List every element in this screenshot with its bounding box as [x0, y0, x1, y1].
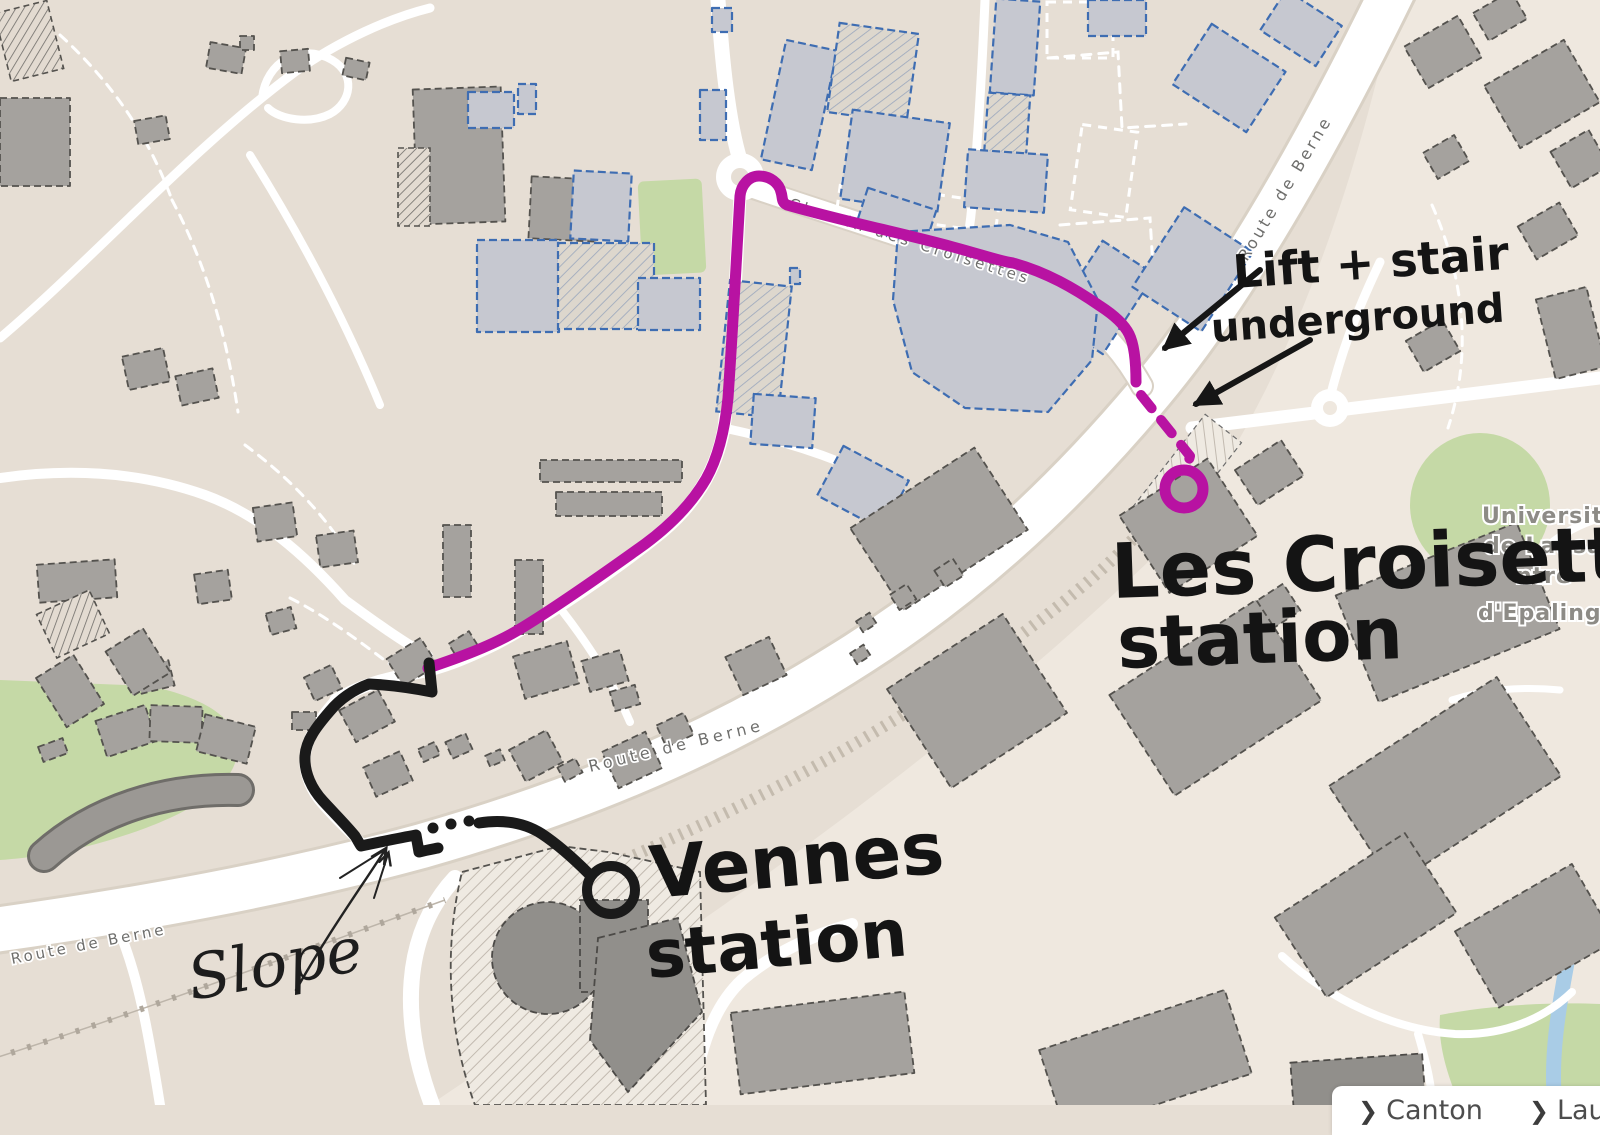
breadcrumb-label: Lausanne [1557, 1095, 1600, 1126]
map-canvas: Chemin des Croisettes Route de Berne Rou… [0, 0, 1600, 1105]
breadcrumb-item-canton[interactable]: ❯ Canton [1358, 1095, 1483, 1126]
university-label-line4: d'Epaling [1478, 601, 1600, 626]
walking-route-dot [464, 816, 475, 827]
annotation-croisettes-station-line2: station [1116, 591, 1404, 685]
breadcrumb-item-lausanne[interactable]: ❯ Lausanne [1529, 1095, 1600, 1126]
chevron-right-icon: ❯ [1358, 1097, 1378, 1125]
walking-route-dot [428, 823, 439, 834]
breadcrumb: ❯ Canton ❯ Lausanne [1332, 1086, 1600, 1135]
breadcrumb-label: Canton [1386, 1095, 1483, 1126]
chevron-right-icon: ❯ [1529, 1097, 1549, 1125]
walking-route-dot [446, 819, 457, 830]
